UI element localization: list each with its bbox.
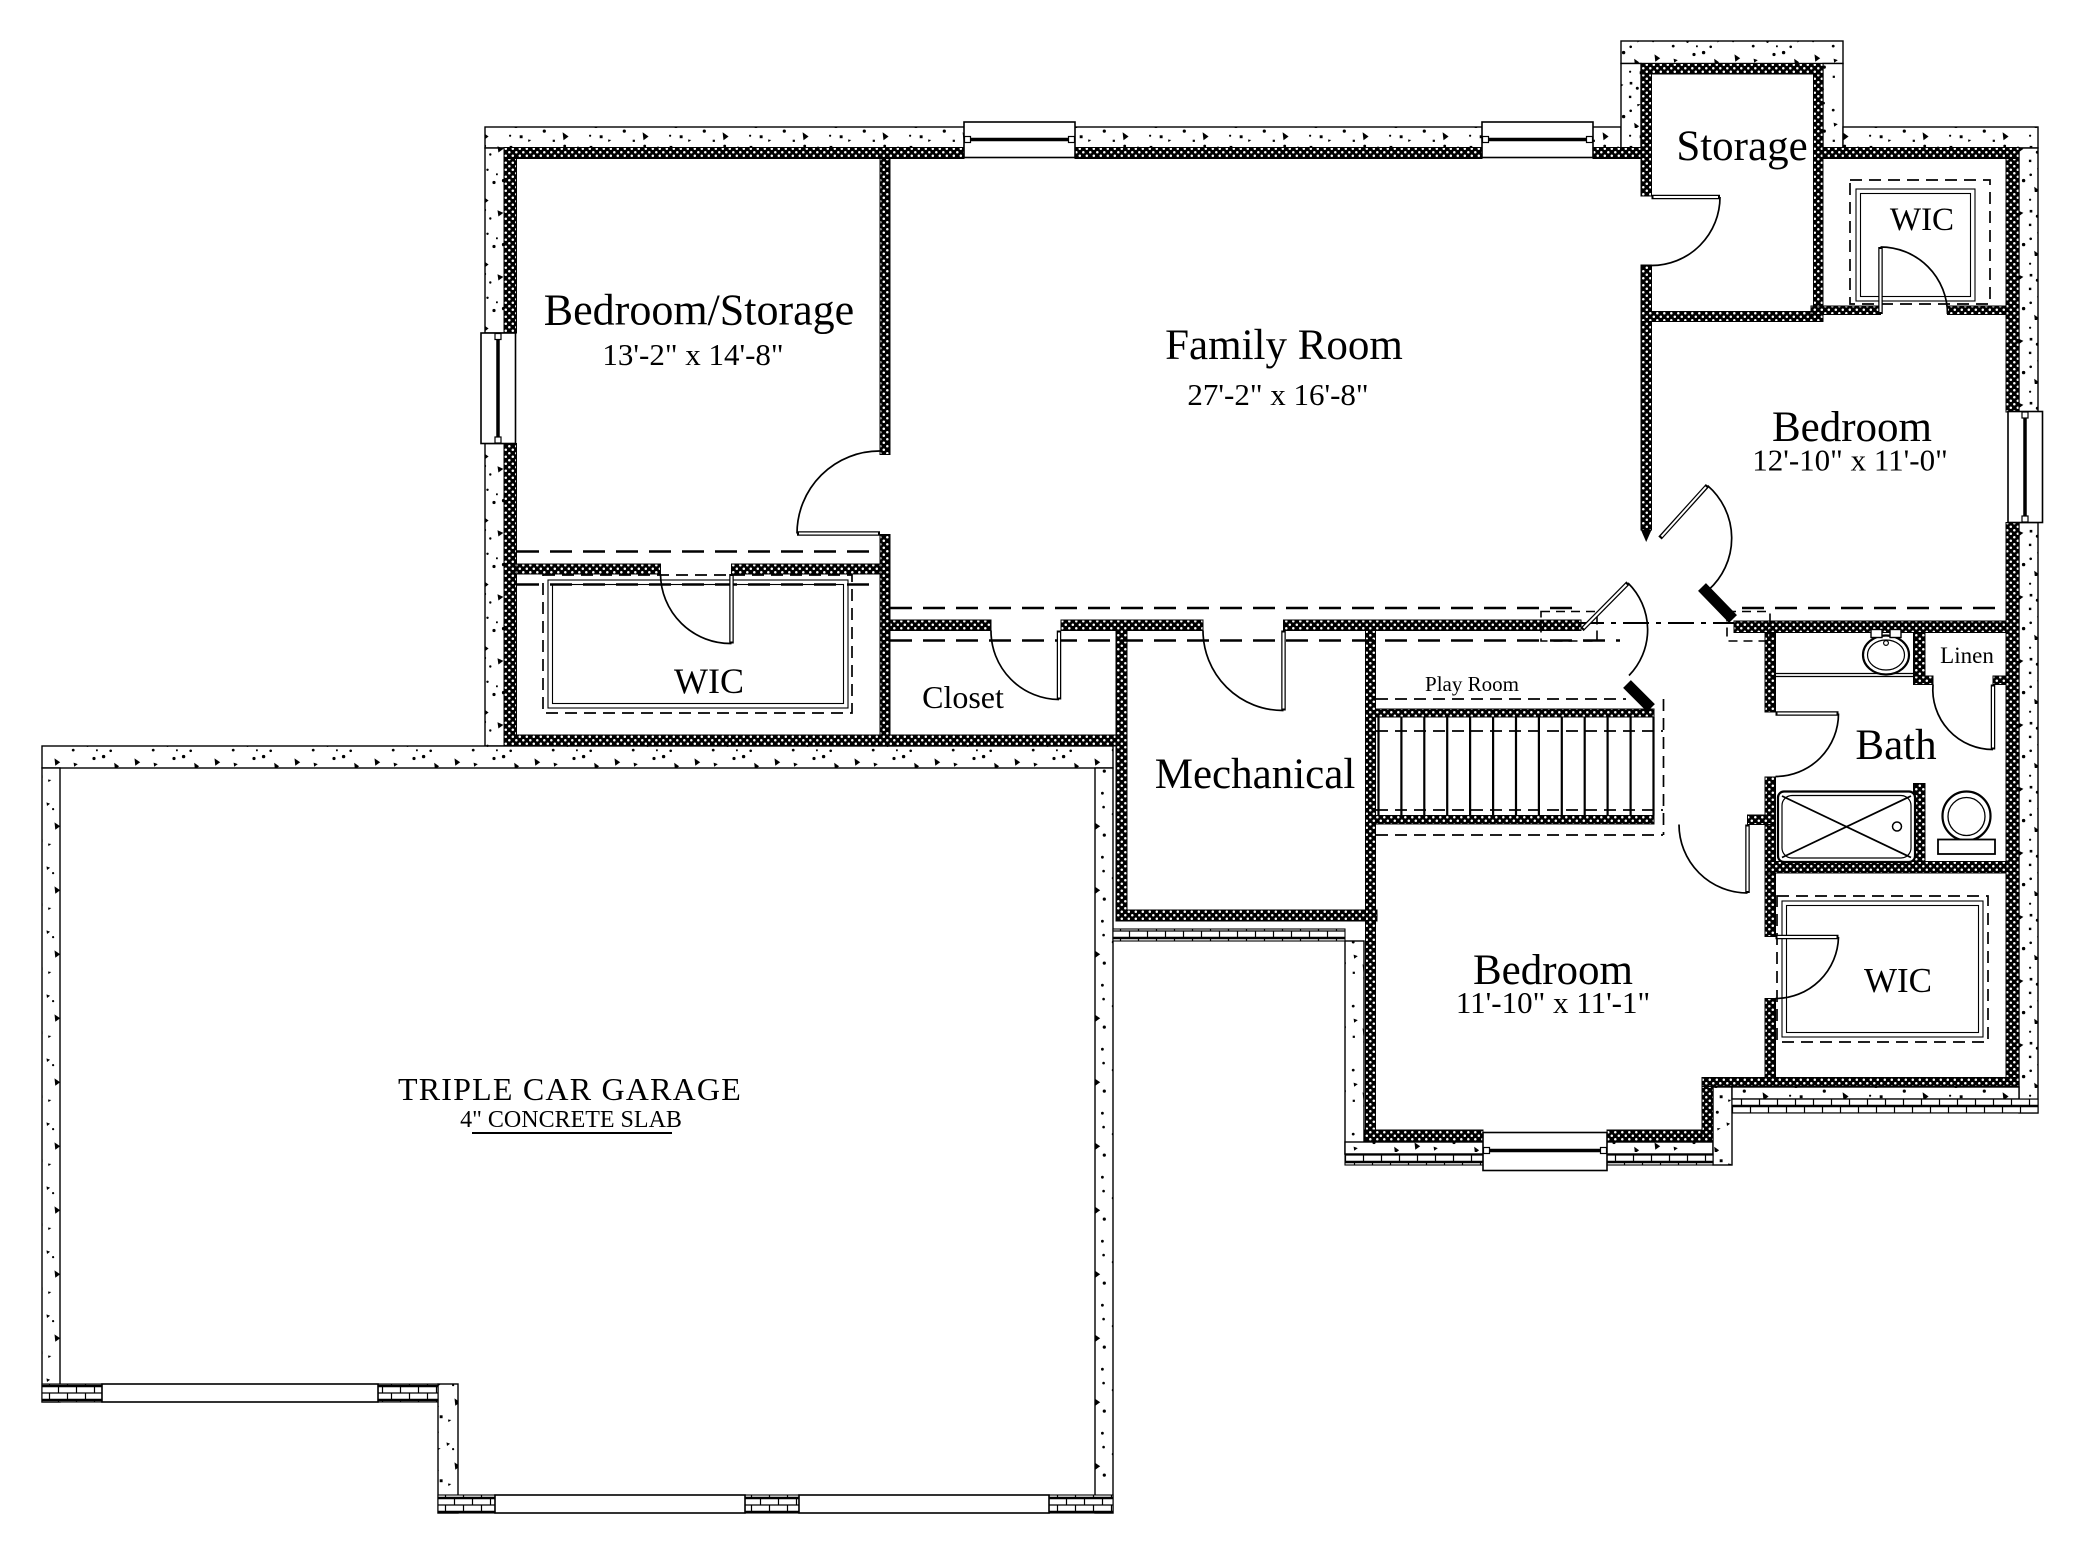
svg-text:Closet: Closet — [922, 679, 1004, 715]
svg-text:Bath: Bath — [1855, 722, 1936, 769]
svg-text:Bedroom/Storage: Bedroom/Storage — [544, 286, 854, 335]
svg-text:TRIPLE CAR GARAGE: TRIPLE CAR GARAGE — [398, 1071, 742, 1107]
svg-text:Linen: Linen — [1940, 643, 1994, 668]
svg-text:Play Room: Play Room — [1425, 672, 1519, 696]
svg-text:12'-10" x 11'-0": 12'-10" x 11'-0" — [1752, 443, 1947, 478]
svg-text:WIC: WIC — [1864, 961, 1932, 1000]
svg-text:Family Room: Family Room — [1165, 322, 1403, 369]
svg-text:4" CONCRETE SLAB: 4" CONCRETE SLAB — [460, 1107, 682, 1133]
svg-text:Mechanical: Mechanical — [1155, 751, 1356, 798]
svg-text:27'-2" x 16'-8": 27'-2" x 16'-8" — [1187, 377, 1368, 412]
svg-text:WIC: WIC — [674, 661, 744, 701]
svg-text:11'-10" x 11'-1": 11'-10" x 11'-1" — [1456, 985, 1650, 1020]
svg-text:WIC: WIC — [1890, 202, 1954, 238]
svg-text:Storage: Storage — [1676, 123, 1807, 170]
svg-text:13'-2" x 14'-8": 13'-2" x 14'-8" — [602, 337, 783, 372]
